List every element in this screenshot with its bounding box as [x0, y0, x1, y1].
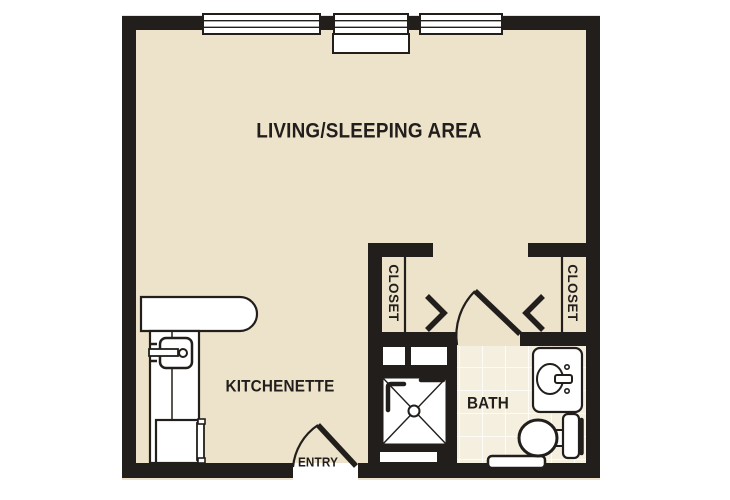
- sink-faucet-icon: [149, 349, 178, 356]
- window-right-icon: [420, 14, 502, 34]
- sink-drain-icon: [179, 349, 187, 357]
- wall-closet-top-right: [528, 243, 586, 257]
- wall-interior-vertical: [368, 243, 382, 478]
- window-center-icon: [334, 14, 408, 34]
- entry-label: ENTRY: [298, 456, 338, 469]
- floor-plan-drawing: [0, 0, 730, 500]
- vanity-handle-top: [565, 365, 569, 369]
- living-area-label: LIVING/SLEEPING AREA: [256, 121, 482, 142]
- baseboard-heater-icon: [488, 456, 545, 468]
- wall-left: [122, 16, 136, 478]
- wall-bottom-left: [122, 463, 293, 478]
- vanity-faucet-icon: [555, 375, 572, 383]
- wall-poche-block: [411, 347, 447, 365]
- wall-right: [586, 16, 600, 478]
- shower-drain-icon: [409, 406, 420, 417]
- refrigerator-door: [197, 423, 204, 460]
- wall-bath-top-right: [520, 332, 586, 346]
- refrigerator-hinge-top: [198, 419, 205, 424]
- closet-left-label: CLOSET: [387, 264, 401, 321]
- vanity-handle-bottom: [565, 389, 569, 393]
- kitchenette-label: KITCHENETTE: [225, 378, 334, 395]
- toilet-bowl: [519, 420, 557, 456]
- closet-right-label: CLOSET: [566, 264, 580, 321]
- floor-plan: LIVING/SLEEPING AREA KITCHENETTE BATH EN…: [0, 0, 730, 500]
- bath-label: BATH: [467, 395, 509, 412]
- wall-vent-block: [380, 452, 437, 462]
- kitchen-counter-icon: [141, 297, 257, 331]
- wall-bottom-right: [358, 463, 600, 478]
- wall-poche-block: [383, 347, 405, 365]
- refrigerator-icon: [156, 420, 198, 463]
- window-sill-icon: [333, 34, 409, 53]
- toilet-tank: [563, 414, 579, 458]
- window-left-icon: [203, 14, 320, 34]
- vanity-sink-icon: [533, 348, 582, 412]
- refrigerator-hinge-bottom: [198, 458, 205, 463]
